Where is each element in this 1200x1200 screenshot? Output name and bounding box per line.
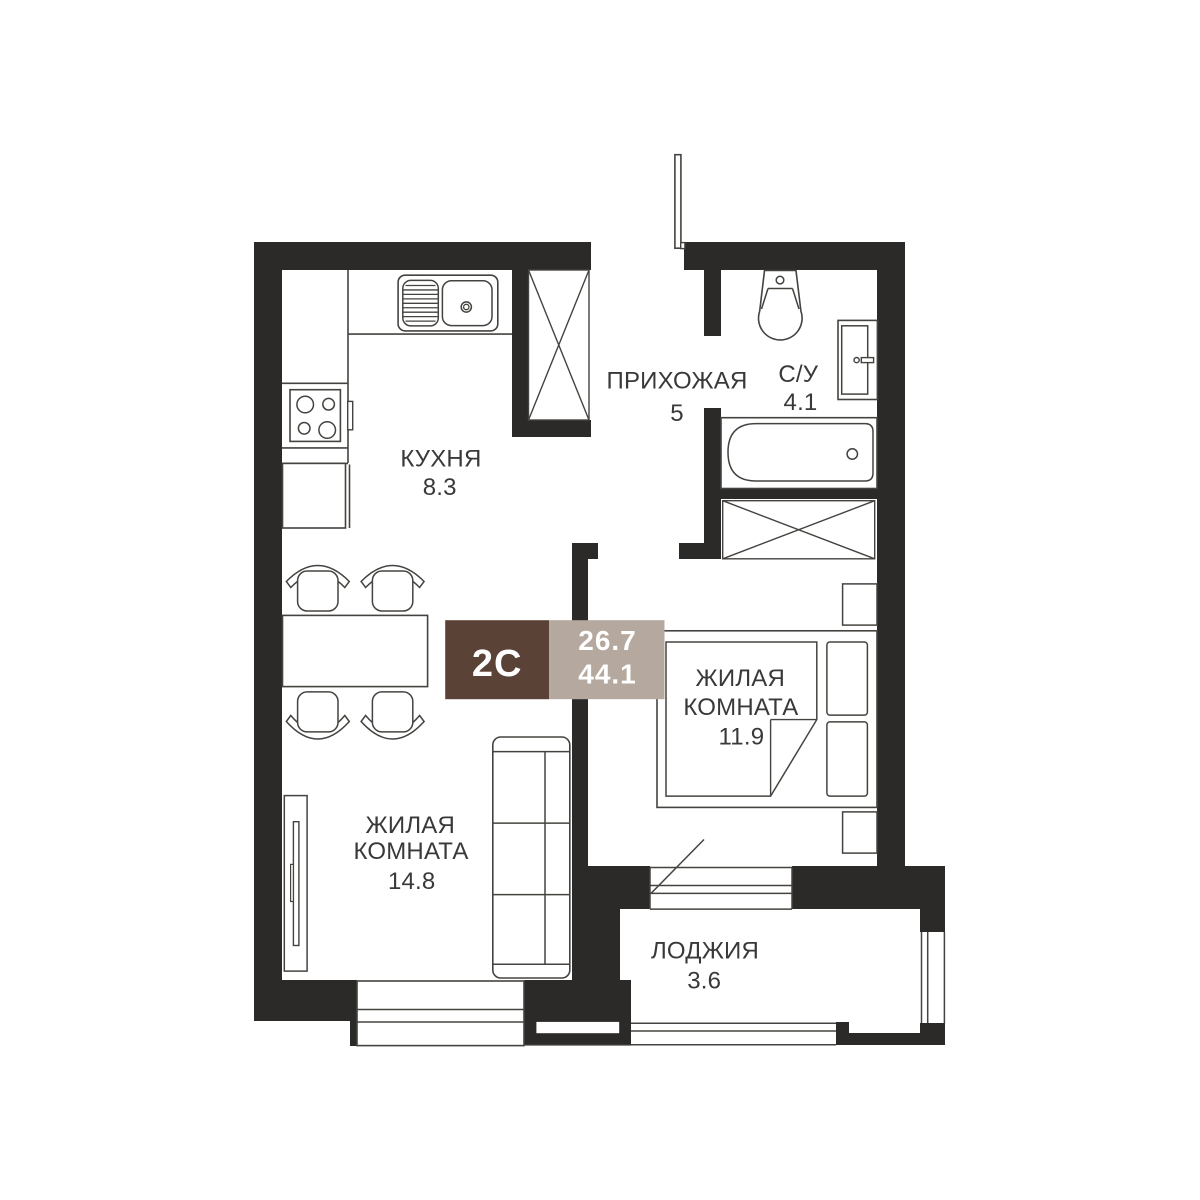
svg-text:44.1: 44.1	[578, 659, 637, 690]
svg-text:ЛОДЖИЯ: ЛОДЖИЯ	[651, 937, 759, 964]
svg-text:ПРИХОЖАЯ: ПРИХОЖАЯ	[607, 368, 748, 395]
svg-text:2C: 2C	[472, 643, 523, 685]
svg-text:КОМНАТА: КОМНАТА	[353, 838, 468, 865]
svg-text:3.6: 3.6	[687, 967, 721, 994]
svg-text:8.3: 8.3	[423, 474, 457, 501]
svg-text:КОМНАТА: КОМНАТА	[683, 694, 798, 721]
svg-text:КУХНЯ: КУХНЯ	[400, 446, 481, 473]
svg-text:ЖИЛАЯ: ЖИЛАЯ	[366, 812, 456, 839]
svg-text:С/У: С/У	[778, 361, 818, 388]
svg-text:14.8: 14.8	[388, 868, 436, 895]
svg-text:ЖИЛАЯ: ЖИЛАЯ	[696, 665, 786, 692]
svg-text:4.1: 4.1	[784, 389, 818, 416]
svg-text:5: 5	[670, 400, 684, 427]
svg-text:26.7: 26.7	[578, 625, 637, 656]
svg-text:11.9: 11.9	[719, 723, 765, 750]
